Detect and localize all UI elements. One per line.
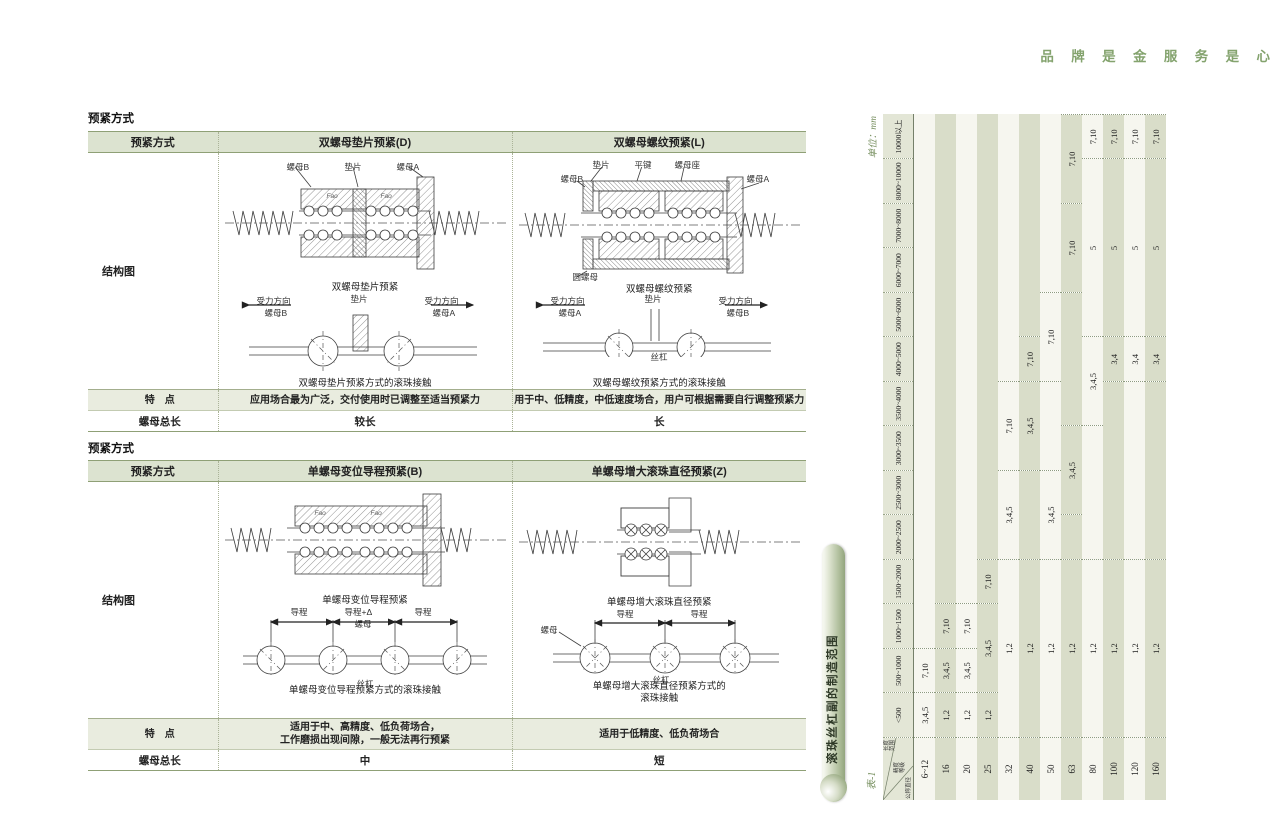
l-feature: 用于中、低精度，中低速度场合，用户可根据需要自行调整预紧力 xyxy=(512,390,806,411)
table2-feature-row: 特 点 适用于中、高精度、低负荷场合， 工作磨损出现间隙，一般无法再行预紧 适用… xyxy=(88,719,806,750)
grade-cell: 5 xyxy=(1145,159,1166,337)
grade-cell: 1,2 xyxy=(1145,560,1166,738)
diameter-label: 25 xyxy=(977,738,998,801)
empty-cell xyxy=(1019,293,1040,338)
b-feature: 适用于中、高精度、低负荷场合， 工作磨损出现间隙，一般无法再行预紧 xyxy=(218,719,512,750)
table1-diagram-label: 结构图 xyxy=(88,153,218,390)
grade-cell: 1,2 xyxy=(935,693,956,738)
l-caption-2: 双螺母螺纹预紧方式的滚珠接触 xyxy=(513,375,807,389)
header-slogan-band: 品 牌 是 金 服 务 是 心 xyxy=(868,44,1285,70)
grade-cell: 3,4 xyxy=(1145,337,1166,382)
empty-cell xyxy=(1040,115,1061,160)
empty-cell xyxy=(914,159,936,204)
title-capsule: 滚珠丝杠副的制造范围 xyxy=(822,544,845,802)
diameter-label: 16 xyxy=(935,738,956,801)
empty-cell xyxy=(998,293,1019,338)
empty-cell xyxy=(1040,426,1061,471)
length-header-cell: 5000~6000 xyxy=(883,293,914,338)
empty-cell xyxy=(1124,382,1145,427)
empty-cell xyxy=(977,248,998,293)
empty-cell xyxy=(914,204,936,249)
diameter-row: 1001,23,457,10 xyxy=(1103,115,1124,801)
empty-cell xyxy=(1040,248,1061,293)
grade-cell: 7,10 xyxy=(1061,204,1082,293)
grade-cell: 7,10 xyxy=(1082,115,1103,160)
empty-cell xyxy=(1019,471,1040,516)
empty-cell xyxy=(977,471,998,516)
table2-nutlength-label: 螺母总长 xyxy=(88,750,218,771)
grade-cell: 5 xyxy=(1103,159,1124,337)
empty-cell xyxy=(1103,426,1124,471)
empty-cell xyxy=(1082,471,1103,516)
title-capsule-ball-icon xyxy=(820,774,847,801)
table1-nutlength-row: 螺母总长 较长 长 xyxy=(88,411,806,432)
table1-feature-label: 特 点 xyxy=(88,390,218,411)
empty-cell xyxy=(956,248,977,293)
empty-cell xyxy=(1124,426,1145,471)
empty-cell xyxy=(935,248,956,293)
range-table-header-row: 长度范围精度等级公称直径<500500~10001000~15001500~20… xyxy=(883,115,914,801)
length-header-cell: 7000~8000 xyxy=(883,204,914,249)
empty-cell xyxy=(956,204,977,249)
b-assembly-svg xyxy=(219,486,513,590)
empty-cell xyxy=(977,293,998,338)
empty-cell xyxy=(977,204,998,249)
z-nut-length: 短 xyxy=(512,750,806,771)
table1-h1: 双螺母垫片预紧(D) xyxy=(218,132,512,153)
empty-cell xyxy=(977,159,998,204)
grade-cell: 1,2 xyxy=(977,693,998,738)
b-feature-line1: 适用于中、高精度、低负荷场合， xyxy=(219,721,512,734)
grade-cell: 7,10 xyxy=(1124,115,1145,160)
diameter-row: 201,23,4,57,10 xyxy=(956,115,977,801)
empty-cell xyxy=(1019,159,1040,204)
z-caption-1: 单螺母增大滚珠直径预紧 xyxy=(513,594,807,608)
empty-cell xyxy=(1103,515,1124,560)
diameter-label: 160 xyxy=(1145,738,1166,801)
grade-cell: 3,4,5 xyxy=(914,693,936,738)
page: 品 牌 是 金 服 务 是 心 预紧方式 预紧方式 双螺母垫片预紧(D) 双螺母… xyxy=(0,0,1285,831)
b-feature-line2: 工作磨损出现间隙，一般无法再行预紧 xyxy=(219,734,512,747)
d-assembly-svg xyxy=(219,165,513,277)
grade-cell: 7,10 xyxy=(998,382,1019,471)
l-contact-svg xyxy=(513,297,807,357)
diameter-row: 251,23,4,57,10 xyxy=(977,115,998,801)
diameter-label: 120 xyxy=(1124,738,1145,801)
empty-cell xyxy=(1082,426,1103,471)
grade-cell: 7,10 xyxy=(1019,337,1040,382)
empty-cell xyxy=(998,337,1019,382)
empty-cell xyxy=(956,426,977,471)
grade-cell: 1,2 xyxy=(1103,560,1124,738)
diameter-label: 20 xyxy=(956,738,977,801)
length-header-cell: 3000~3500 xyxy=(883,426,914,471)
z-contact-svg xyxy=(513,618,807,674)
d-caption-2: 双螺母垫片预紧方式的滚珠接触 xyxy=(219,375,512,389)
empty-cell xyxy=(935,159,956,204)
corner-diagonal-cell: 长度范围精度等级公称直径 xyxy=(883,738,914,801)
length-header-cell: 1000~1500 xyxy=(883,604,914,649)
table2-h2: 单螺母增大滚珠直径预紧(Z) xyxy=(512,461,806,482)
table2-h1: 单螺母变位导程预紧(B) xyxy=(218,461,512,482)
diameter-row: 161,23,4,57,10 xyxy=(935,115,956,801)
grade-cell: 3,4,5 xyxy=(1061,426,1082,515)
empty-cell xyxy=(977,337,998,382)
diameter-label: 6~12 xyxy=(914,738,936,801)
grade-cell: 1,2 xyxy=(1124,560,1145,738)
preload-table-2: 预紧方式 单螺母变位导程预紧(B) 单螺母增大滚珠直径预紧(Z) 结构图 Fao… xyxy=(88,460,806,771)
table1-h2: 双螺母螺纹预紧(L) xyxy=(512,132,806,153)
length-header-cell: 500~1000 xyxy=(883,649,914,694)
grade-cell: 3,4,5 xyxy=(1040,471,1061,560)
diameter-label: 50 xyxy=(1040,738,1061,801)
empty-cell xyxy=(956,337,977,382)
empty-cell xyxy=(956,560,977,605)
length-header-cell: 8000~10000 xyxy=(883,159,914,204)
table2-header-row: 预紧方式 单螺母变位导程预紧(B) 单螺母增大滚珠直径预紧(Z) xyxy=(88,461,806,482)
length-header-cell: 4000~5000 xyxy=(883,337,914,382)
grade-cell: 7,10 xyxy=(914,649,936,694)
empty-cell xyxy=(1145,426,1166,471)
empty-cell xyxy=(998,248,1019,293)
empty-cell xyxy=(998,159,1019,204)
empty-cell xyxy=(935,293,956,338)
empty-cell xyxy=(998,115,1019,160)
d-caption-1: 双螺母垫片预紧 xyxy=(219,279,512,293)
rotated-page-wrap: 滚珠丝杠副的制造范围 表-1 单位：mm 长度范围精度等级公称直径<500500… xyxy=(813,112,1183,802)
empty-cell xyxy=(935,115,956,160)
l-nut-length: 长 xyxy=(512,411,806,432)
empty-cell xyxy=(935,560,956,605)
empty-cell xyxy=(1019,204,1040,249)
grade-cell: 7,10 xyxy=(1145,115,1166,160)
grade-cell: 5 xyxy=(1124,159,1145,337)
empty-cell xyxy=(914,515,936,560)
table1-header-row: 预紧方式 双螺母垫片预紧(D) 双螺母螺纹预紧(L) xyxy=(88,132,806,153)
grade-cell: 7,10 xyxy=(977,560,998,605)
empty-cell xyxy=(1019,115,1040,160)
grade-cell: 7,10 xyxy=(1040,293,1061,382)
diameter-row: 631,23,4,57,107,10 xyxy=(1061,115,1082,801)
empty-cell xyxy=(914,426,936,471)
diameter-row: 801,23,4,557,10 xyxy=(1082,115,1103,801)
grade-cell: 3,4 xyxy=(1124,337,1145,382)
table2-nutlength-row: 螺母总长 中 短 xyxy=(88,750,806,771)
corner-length-label: 长度范围 xyxy=(884,740,896,751)
table1-diagram-row: 结构图 螺母B 垫片 螺母A Fao Fao xyxy=(88,153,806,390)
grade-cell: 7,10 xyxy=(1061,115,1082,204)
grade-cell: 1,2 xyxy=(1019,560,1040,738)
length-header-cell: 2500~3000 xyxy=(883,471,914,516)
grade-cell: 1,2 xyxy=(998,560,1019,738)
empty-cell xyxy=(1145,382,1166,427)
grade-cell: 3,4,5 xyxy=(1019,382,1040,471)
empty-cell xyxy=(1061,337,1082,382)
length-header-cell: 1500~2000 xyxy=(883,560,914,605)
diameter-row: 501,23,4,57,10 xyxy=(1040,115,1061,801)
empty-cell xyxy=(914,248,936,293)
length-header-cell: 2000~2500 xyxy=(883,515,914,560)
empty-cell xyxy=(977,382,998,427)
grade-cell: 1,2 xyxy=(1082,560,1103,738)
length-header-cell: 10000以上 xyxy=(883,115,914,160)
grade-cell: 7,10 xyxy=(935,604,956,649)
empty-cell xyxy=(956,115,977,160)
empty-cell xyxy=(935,204,956,249)
z-feature: 适用于低精度、低负荷场合 xyxy=(512,719,806,750)
empty-cell xyxy=(914,382,936,427)
diameter-row: 401,23,4,57,10 xyxy=(1019,115,1040,801)
d-feature: 应用场合最为广泛，交付使用时已调整至适当预紧力 xyxy=(218,390,512,411)
empty-cell xyxy=(1061,382,1082,427)
b-caption-2: 单螺母变位导程预紧方式的滚珠接触 xyxy=(219,682,512,696)
empty-cell xyxy=(977,426,998,471)
grade-cell: 1,2 xyxy=(956,693,977,738)
empty-cell xyxy=(1082,515,1103,560)
empty-cell xyxy=(935,515,956,560)
header-slogan: 品 牌 是 金 服 务 是 心 xyxy=(1040,44,1277,70)
b-contact-svg xyxy=(219,616,513,678)
empty-cell xyxy=(1061,515,1082,560)
grade-cell: 7,10 xyxy=(1103,115,1124,160)
table2-feature-label: 特 点 xyxy=(88,719,218,750)
manufacturing-range-table: 长度范围精度等级公称直径<500500~10001000~15001500~20… xyxy=(883,114,1166,800)
d-nut-length: 较长 xyxy=(218,411,512,432)
grade-cell: 3,4,5 xyxy=(935,649,956,694)
grade-cell: 3,4,5 xyxy=(956,649,977,694)
empty-cell xyxy=(914,471,936,516)
diameter-label: 100 xyxy=(1103,738,1124,801)
empty-cell xyxy=(956,471,977,516)
empty-cell xyxy=(1145,471,1166,516)
length-header-cell: 6000~7000 xyxy=(883,248,914,293)
diameter-row: 321,23,4,57,10 xyxy=(998,115,1019,801)
empty-cell xyxy=(977,115,998,160)
empty-cell xyxy=(1103,471,1124,516)
table-number: 表-1 xyxy=(863,772,878,790)
diameter-label: 32 xyxy=(998,738,1019,801)
grade-cell: 1,2 xyxy=(1040,560,1061,738)
empty-cell xyxy=(935,471,956,516)
d-contact-svg xyxy=(219,297,513,375)
diagram-cell-L: 垫片 平键 螺母座 螺母B 螺母A 圆螺母 xyxy=(512,153,806,390)
grade-cell: 3,4,5 xyxy=(1082,337,1103,426)
diameter-row: 6~123,4,57,10 xyxy=(914,115,936,801)
empty-cell xyxy=(1124,515,1145,560)
diameter-label: 80 xyxy=(1082,738,1103,801)
empty-cell xyxy=(914,560,936,605)
b-nut-length: 中 xyxy=(218,750,512,771)
empty-cell xyxy=(935,337,956,382)
table1-h0: 预紧方式 xyxy=(88,132,218,153)
empty-cell xyxy=(1061,293,1082,338)
empty-cell xyxy=(956,515,977,560)
empty-cell xyxy=(914,337,936,382)
table1-feature-row: 特 点 应用场合最为广泛，交付使用时已调整至适当预紧力 用于中、低精度，中低速度… xyxy=(88,390,806,411)
empty-cell xyxy=(977,515,998,560)
diameter-row: 1601,23,457,10 xyxy=(1145,115,1166,801)
rotated-page: 滚珠丝杠副的制造范围 表-1 单位：mm 长度范围精度等级公称直径<500500… xyxy=(813,112,1183,802)
grade-cell: 3,4,5 xyxy=(998,471,1019,560)
empty-cell xyxy=(935,382,956,427)
empty-cell xyxy=(1019,248,1040,293)
b-caption-1: 单螺母变位导程预紧 xyxy=(219,592,512,606)
grade-cell: 3,4 xyxy=(1103,337,1124,382)
empty-cell xyxy=(956,382,977,427)
diagram-cell-D: 螺母B 垫片 螺母A Fao Fao xyxy=(218,153,512,390)
length-header-cell: <500 xyxy=(883,693,914,738)
corner-grade-label: 精度等级 xyxy=(894,762,906,773)
diagram-cell-B: Fao Fao xyxy=(218,482,512,719)
z-caption-2b: 滚珠接触 xyxy=(513,690,807,704)
table2-diagram-label: 结构图 xyxy=(88,482,218,719)
empty-cell xyxy=(1040,382,1061,427)
empty-cell xyxy=(1040,204,1061,249)
empty-cell xyxy=(1019,515,1040,560)
corner-diameter-label: 公称直径 xyxy=(906,777,912,799)
table2-h0: 预紧方式 xyxy=(88,461,218,482)
empty-cell xyxy=(935,426,956,471)
empty-cell xyxy=(956,293,977,338)
section2-label: 预紧方式 xyxy=(88,440,134,456)
empty-cell xyxy=(914,293,936,338)
grade-cell: 3,4,5 xyxy=(977,604,998,693)
z-assembly-svg xyxy=(513,490,807,590)
right-table-title: 滚珠丝杠副的制造范围 xyxy=(822,634,845,764)
empty-cell xyxy=(1124,471,1145,516)
section1-label: 预紧方式 xyxy=(88,110,134,126)
table2-diagram-row: 结构图 Fao Fao xyxy=(88,482,806,719)
diameter-row: 1201,23,457,10 xyxy=(1124,115,1145,801)
grade-cell: 1,2 xyxy=(1061,560,1082,738)
empty-cell xyxy=(1145,515,1166,560)
empty-cell xyxy=(914,604,936,649)
length-header-cell: 3500~4000 xyxy=(883,382,914,427)
diameter-label: 40 xyxy=(1019,738,1040,801)
table1-nutlength-label: 螺母总长 xyxy=(88,411,218,432)
empty-cell xyxy=(1040,159,1061,204)
l-assembly-svg xyxy=(513,167,807,279)
preload-table-1: 预紧方式 双螺母垫片预紧(D) 双螺母螺纹预紧(L) 结构图 螺母B 垫片 螺母… xyxy=(88,131,806,432)
unit-label: 单位：mm xyxy=(865,116,879,242)
empty-cell xyxy=(1103,382,1124,427)
diagram-cell-Z: 单螺母增大滚珠直径预紧 导程 导程 螺母 丝杠 xyxy=(512,482,806,719)
empty-cell xyxy=(998,204,1019,249)
diameter-label: 63 xyxy=(1061,738,1082,801)
grade-cell: 5 xyxy=(1082,159,1103,337)
empty-cell xyxy=(914,115,936,160)
empty-cell xyxy=(956,159,977,204)
grade-cell: 7,10 xyxy=(956,604,977,649)
